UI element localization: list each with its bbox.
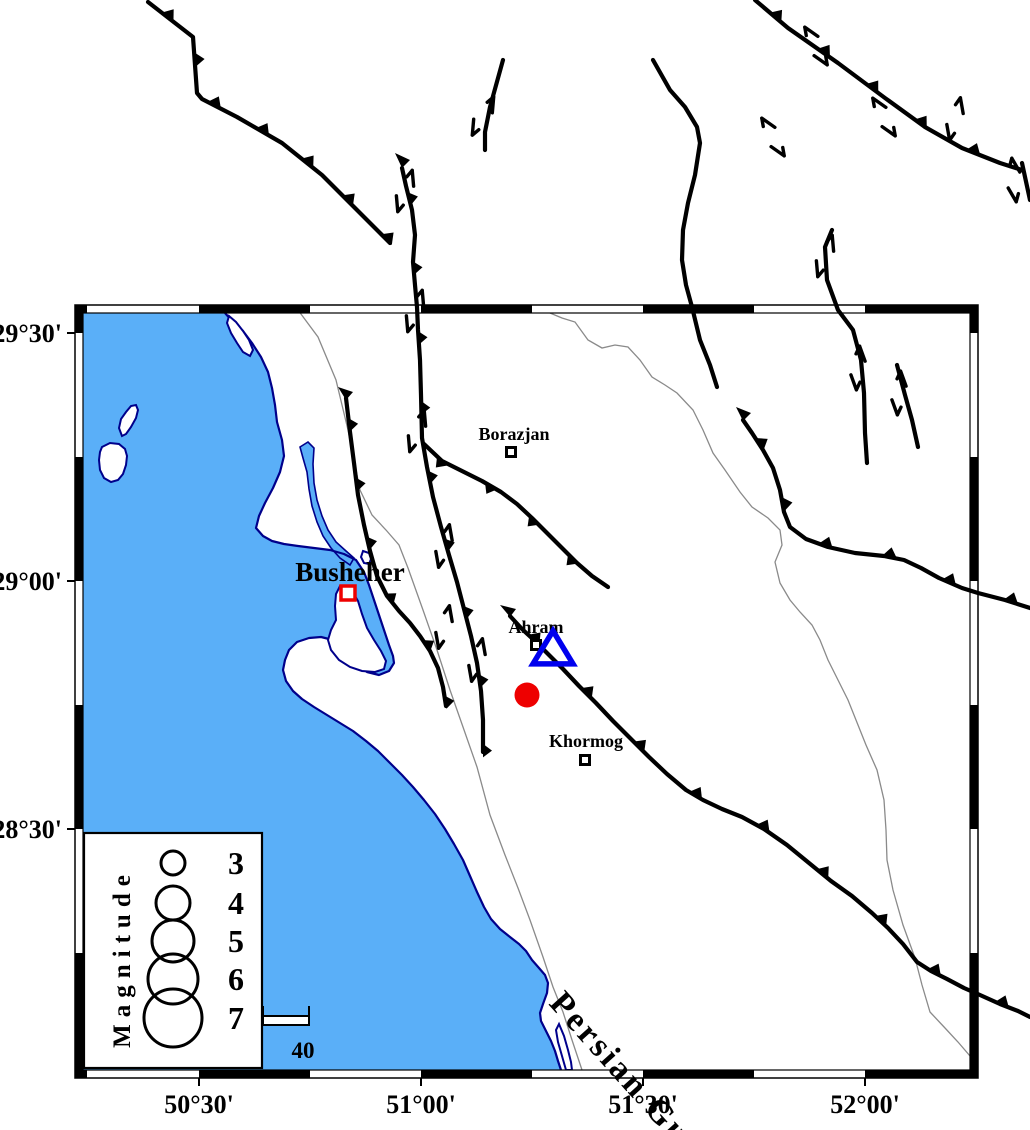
- fault-ne-short: [1022, 163, 1030, 200]
- strike-slip-arrow: [436, 550, 445, 567]
- frame-black-segment: [199, 305, 310, 313]
- frame-black-segment: [75, 953, 83, 1078]
- fault-tooth: [194, 52, 205, 67]
- earthquake-epicenter: [515, 683, 540, 708]
- city-label-khormog: Khormog: [549, 731, 623, 751]
- strike-slip-arrow: [472, 119, 479, 135]
- legend-magnitude-value-5: 5: [228, 923, 244, 959]
- city-marker-khormog: [581, 756, 590, 765]
- frame-black-segment: [643, 1070, 754, 1078]
- lon-label-50-30: 50°30': [164, 1090, 234, 1119]
- frame-black-segment: [421, 305, 532, 313]
- lat-label-28-30: 28°30': [0, 815, 62, 844]
- strike-slip-arrow: [476, 639, 485, 656]
- legend-title: Magnitude: [109, 868, 136, 1048]
- strike-slip-arrow: [406, 315, 413, 331]
- city-label-borazjan: Borazjan: [479, 424, 550, 444]
- fault-ahram-thrust: [510, 616, 1030, 1017]
- frame-black-segment: [865, 1070, 970, 1078]
- fault-end-barb: [500, 605, 516, 617]
- lat-label-29-30: 29°30': [0, 319, 62, 348]
- frame-black-segment: [970, 305, 978, 333]
- city-marker-ahram: [532, 641, 541, 650]
- strike-slip-arrow: [869, 98, 886, 112]
- strike-slip-arrow: [1008, 185, 1021, 202]
- frame-black-segment: [970, 705, 978, 829]
- scale-bar-label: 40: [292, 1038, 315, 1063]
- strike-slip-arrow: [892, 398, 903, 415]
- frame-black-segment: [970, 953, 978, 1078]
- fault-end-barb: [736, 407, 751, 421]
- fault-ne-thrust: [755, 0, 1022, 170]
- strike-slip-arrow: [882, 122, 899, 136]
- strike-slip-arrow: [443, 606, 452, 623]
- strike-slip-arrow: [771, 142, 788, 156]
- city-label-busheher: Busheher: [295, 557, 405, 587]
- fault-tooth: [483, 744, 492, 758]
- strike-slip-arrow: [436, 631, 445, 648]
- strike-slip-arrow: [758, 118, 775, 132]
- lon-label-52-00: 52°00': [830, 1090, 900, 1119]
- map-canvas: BorazjanBusheherAhramKhormog Magnitude 3…: [0, 0, 1030, 1130]
- legend-magnitude-value-7: 7: [228, 1000, 244, 1036]
- strike-slip-marks-layer: [396, 27, 1021, 681]
- city-marker-busheher: [341, 586, 355, 600]
- frame-black-segment: [865, 305, 970, 313]
- fault-zagros-front: [743, 420, 1030, 608]
- strike-slip-arrow: [947, 123, 956, 140]
- legend-magnitude-value-6: 6: [228, 961, 244, 997]
- lon-label-51-00: 51°00': [386, 1090, 456, 1119]
- legend-magnitude-value-4: 4: [228, 885, 244, 921]
- strike-slip-arrow: [954, 98, 963, 115]
- frame-black-segment: [643, 305, 754, 313]
- frame-black-segment: [75, 305, 83, 333]
- lat-label-29-00: 29°00': [0, 567, 62, 596]
- fault-north-curved: [653, 60, 717, 387]
- seismotectonic-map-figure: BorazjanBusheherAhramKhormog Magnitude 3…: [0, 0, 1030, 1130]
- strike-slip-arrow: [816, 260, 823, 276]
- fault-tooth: [418, 331, 427, 344]
- fault-end-barb: [395, 153, 410, 168]
- frame-black-segment: [421, 1070, 532, 1078]
- legend-magnitude-value-3: 3: [228, 845, 244, 881]
- fault-tooth: [348, 418, 358, 431]
- strike-slip-arrow: [408, 435, 415, 451]
- frame-black-segment: [199, 1070, 310, 1078]
- scale-bar-rect: [263, 1016, 309, 1025]
- strike-slip-arrow: [396, 195, 403, 211]
- city-marker-borazjan: [507, 448, 516, 457]
- frame-black-segment: [75, 705, 83, 829]
- frame-black-segment: [970, 457, 978, 581]
- fault-tooth: [356, 478, 366, 491]
- frame-black-segment: [75, 457, 83, 581]
- fault-tooth: [413, 261, 423, 274]
- fault-nw-margin: [148, 2, 390, 243]
